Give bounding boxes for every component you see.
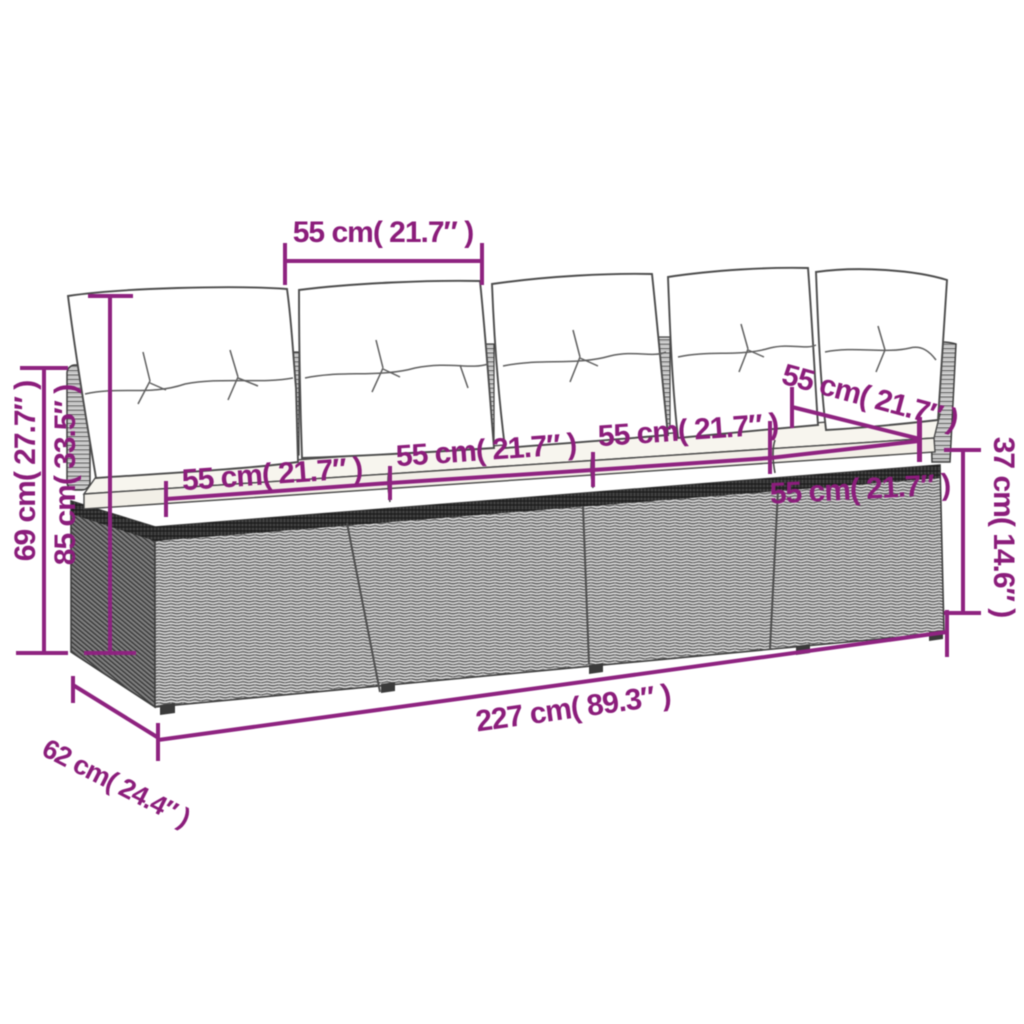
- svg-text:227 cm( 89.3″ ): 227 cm( 89.3″ ): [474, 679, 673, 739]
- svg-text:85 cm( 33.5″ ): 85 cm( 33.5″ ): [49, 385, 82, 565]
- svg-text:62 cm( 24.4″ ): 62 cm( 24.4″ ): [38, 733, 195, 833]
- svg-text:37 cm( 14.6″ ): 37 cm( 14.6″ ): [987, 437, 1020, 617]
- svg-text:55 cm( 21.7″ ): 55 cm( 21.7″ ): [293, 216, 473, 249]
- svg-text:69 cm( 27.7″ ): 69 cm( 27.7″ ): [9, 381, 42, 561]
